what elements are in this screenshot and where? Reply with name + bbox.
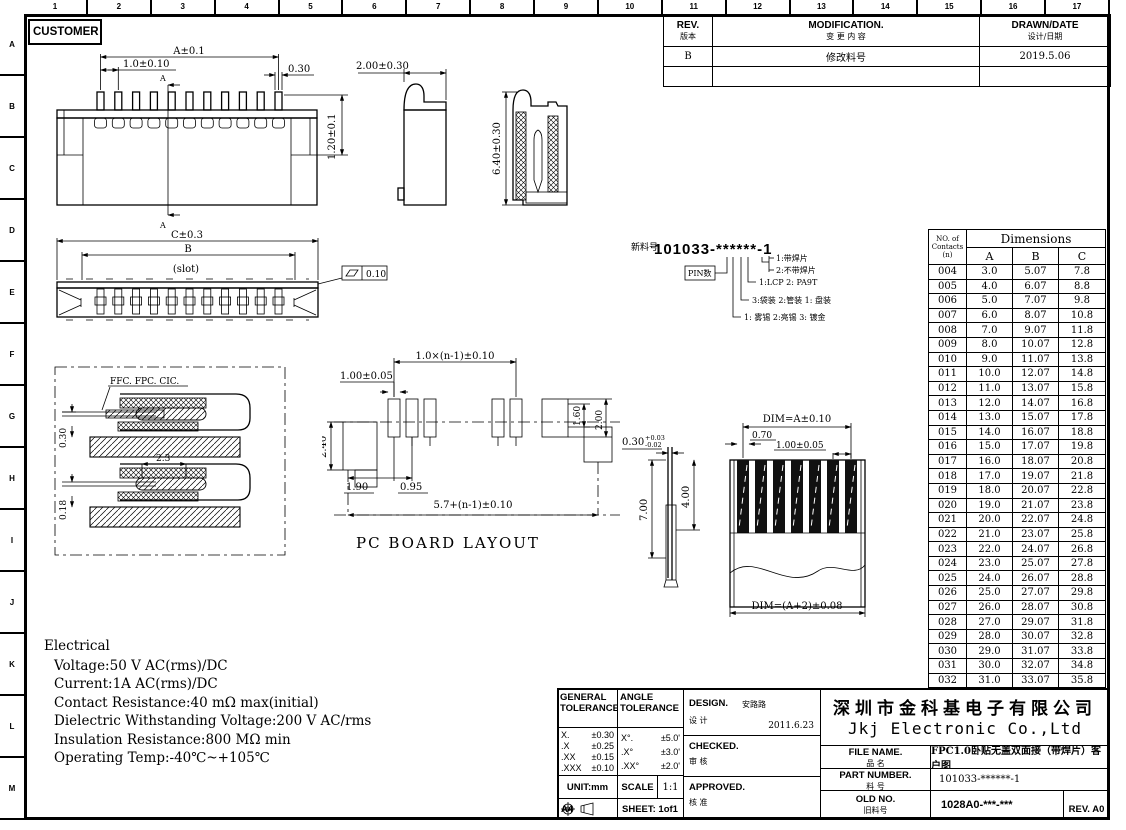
revision-table: REV.版本 MODIFICATION.变 更 内 容 DRAWN/DATE设计… [663, 14, 1111, 87]
dim-table-row: 01110.012.0714.8 [929, 367, 1106, 382]
dim-table-row: 0054.06.078.8 [929, 279, 1106, 294]
revision-row: B 修改料号 2019.5.06 [664, 47, 1111, 67]
ruler-top-cell: 16 [982, 0, 1046, 14]
svg-text:0.10: 0.10 [366, 270, 386, 280]
mod-col-header: MODIFICATION.变 更 内 容 [713, 15, 980, 47]
ruler-left-cell: E [0, 262, 24, 324]
ruler-left-cell: H [0, 448, 24, 510]
detail-sections: FFC. FPC. CIC. 0.30 2.3 [46, 360, 296, 565]
ruler-top-cell: 6 [343, 0, 407, 14]
ruler-top-cell: 5 [280, 0, 344, 14]
legend-note: 1: 雾锡 2:亮锡 3: 镀金 [744, 312, 826, 322]
dim-table-row: 03231.033.0735.8 [929, 673, 1106, 688]
dim-pcb-h1: 1.60 [573, 406, 583, 426]
title-block: GENERALTOLERANCE ANGLETOLERANCE X.±0.30 … [557, 688, 1110, 820]
dimensions-table: NO. of Contacts (n) Dimensions A B C 004… [928, 229, 1106, 688]
dim-pcb-h3: 2.40 [322, 436, 329, 458]
section-line-a: A A [159, 74, 180, 230]
ruler-top-cell: 12 [727, 0, 791, 14]
dim-ffc-l2: 4.00 [681, 486, 692, 508]
ruler-top-cell: 9 [535, 0, 599, 14]
dim-detail-w: 2.3 [156, 454, 171, 464]
dim-ffc-pitch: 1.00±0.05 [776, 441, 824, 451]
ffc-views: 0.30 +0.03 -0.02 7.00 4.00 [618, 393, 913, 633]
dim-pcb-o1: 1.90 [346, 482, 368, 493]
svg-text:A: A [159, 74, 166, 83]
dim-ffc-l1: 7.00 [639, 499, 650, 521]
pin-count-label: PIN数 [688, 268, 712, 278]
ruler-left-cell: K [0, 634, 24, 696]
dim-detail-t1: 0.30 [59, 428, 69, 448]
electrical-line: Contact Resistance:40 mΩ max(initial) [54, 694, 371, 712]
ruler-left-cell: I [0, 510, 24, 572]
ruler-left-cell: B [0, 76, 24, 138]
dim-ffc-wa: DIM=A±0.10 [763, 414, 831, 425]
ruler-top-cell: 2 [88, 0, 152, 14]
ruler-top-cell: 1 [24, 0, 88, 14]
bottom-view: C±0.3 B (slot) [36, 230, 436, 335]
section-view [513, 90, 567, 205]
dim-pcb-o2: 0.95 [400, 482, 422, 493]
dim-table-row: 0087.09.0711.8 [929, 323, 1106, 338]
customer-label: CUSTOMER [33, 26, 99, 38]
dim-pcb-pad: 1.00±0.05 [340, 371, 393, 382]
dim-pcb-h2: 2.00 [595, 410, 605, 430]
electrical-line: Insulation Resistance:800 MΩ min [54, 731, 371, 749]
ruler-top-cell: 8 [471, 0, 535, 14]
electrical-line: Voltage:50 V AC(rms)/DC [54, 657, 371, 675]
electrical-title: Electrical [44, 638, 371, 654]
drawn-col-header: DRAWN/DATE设计/日期 [980, 15, 1111, 47]
dim-table-row: 0065.07.079.8 [929, 294, 1106, 309]
dim-pcb-total: 5.7+(n-1)±0.10 [434, 500, 513, 511]
dim-ffc-wb: DIM=(A+2)±0.08 [752, 601, 843, 612]
ruler-left-cell: J [0, 572, 24, 634]
dim-table-row: 02120.022.0724.8 [929, 513, 1106, 528]
ruler-top: 1234567891011121314151617 [24, 0, 1110, 14]
rev-col-header: REV.版本 [664, 15, 713, 47]
title-block-border [557, 688, 1110, 820]
legend-note: 3:袋装 2:管装 1: 盘装 [752, 295, 831, 305]
dim-ffc-gap: 0.70 [752, 431, 772, 441]
slot-label: (slot) [173, 264, 199, 275]
ruler-top-cell: 15 [918, 0, 982, 14]
dim-b: B [184, 244, 191, 255]
ruler-left-cell: D [0, 200, 24, 262]
bottom-view-contacts [95, 289, 284, 314]
dim-table-row: 01918.020.0722.8 [929, 483, 1106, 498]
ruler-top-cell: 14 [854, 0, 918, 14]
cable-types-label: FFC. FPC. CIC. [110, 377, 179, 387]
dim-table-row: 01413.015.0717.8 [929, 410, 1106, 425]
electrical-line: Dielectric Withstanding Voltage:200 V AC… [54, 712, 371, 730]
side-view [398, 84, 446, 205]
electrical-notes: Electrical Voltage:50 V AC(rms)/DC Curre… [44, 638, 371, 767]
dim-table-row: 02221.023.0725.8 [929, 527, 1106, 542]
dim-table-row: 03130.032.0734.8 [929, 659, 1106, 674]
part-number-legend: 新料号 101033-******-1 PIN数 1:带焊片 2:不带焊片 1:… [628, 232, 928, 337]
ruler-left-cell: M [0, 758, 24, 820]
dim-table-row: 02625.027.0729.8 [929, 586, 1106, 601]
dim-table-row: 0076.08.0710.8 [929, 308, 1106, 323]
part-code-number: 101033-******-1 [654, 241, 772, 258]
dim-height: 1.20±0.1 [327, 113, 338, 160]
ruler-top-cell: 3 [152, 0, 216, 14]
dim-side-width: 2.00±0.30 [356, 61, 409, 72]
dim-table-row: 02524.026.0728.8 [929, 571, 1106, 586]
pcb-layout: 1.0×(n-1)±0.10 1.00±0.05 2.40 1.60 2.00 … [322, 348, 627, 560]
ruler-top-cell: 10 [599, 0, 663, 14]
dim-table-row: 02019.021.0723.8 [929, 498, 1106, 513]
ruler-top-cell: 7 [407, 0, 471, 14]
revision-row [664, 67, 1111, 87]
front-view [57, 110, 317, 205]
legend-note: 1:带焊片 [776, 253, 808, 263]
ruler-top-cell: 13 [791, 0, 855, 14]
dim-table-row: 01312.014.0716.8 [929, 396, 1106, 411]
dim-table-row: 0098.010.0712.8 [929, 337, 1106, 352]
dim-table-row: 01211.013.0715.8 [929, 381, 1106, 396]
flatness-icon [346, 270, 358, 276]
dim-pin-width: 0.30 [288, 64, 310, 75]
dim-table-row: 03029.031.0733.8 [929, 644, 1106, 659]
col-a-header: A [967, 248, 1013, 265]
dim-section-height: 6.40±0.30 [492, 122, 503, 175]
dim-pcb-pitch: 1.0×(n-1)±0.10 [416, 351, 495, 362]
dimensions-header: Dimensions [967, 230, 1106, 248]
dim-pitch: 1.0±0.10 [123, 59, 170, 70]
dim-table-row: 01817.019.0721.8 [929, 469, 1106, 484]
dim-table-row: 02322.024.0726.8 [929, 542, 1106, 557]
dim-table-row: 01716.018.0720.8 [929, 454, 1106, 469]
drawing-sheet: 1234567891011121314151617 ABCDEFGHIJKLM … [0, 0, 1126, 830]
pcb-pads [343, 399, 612, 487]
ruler-left-cell: C [0, 138, 24, 200]
detail-upper: 0.30 [59, 394, 250, 457]
pcb-caption: PC BOARD LAYOUT [356, 534, 540, 552]
ruler-top-cell: 17 [1046, 0, 1110, 14]
svg-text:A: A [159, 221, 166, 230]
dim-table-row: 01615.017.0719.8 [929, 440, 1106, 455]
front-side-section-views: A±0.1 1.0±0.10 0.30 1.20±0.1 A A 2. [36, 40, 610, 235]
dim-table-row: 01514.016.0718.8 [929, 425, 1106, 440]
svg-text:-0.02: -0.02 [645, 441, 662, 449]
legend-note: 2:不带焊片 [776, 265, 816, 275]
electrical-line: Current:1A AC(rms)/DC [54, 675, 371, 693]
col-c-header: C [1059, 248, 1106, 265]
dim-table-row: 0109.011.0713.8 [929, 352, 1106, 367]
dim-table-row: 02423.025.0727.8 [929, 556, 1106, 571]
col-b-header: B [1013, 248, 1059, 265]
legend-note: 1:LCP 2: PA9T [759, 278, 818, 287]
dim-detail-t2: 0.18 [59, 500, 69, 520]
ruler-left-cell: A [0, 14, 24, 76]
contacts-header: NO. of Contacts (n) [929, 230, 967, 265]
dim-table-row: 02827.029.0731.8 [929, 615, 1106, 630]
dim-table-row: 02726.028.0730.8 [929, 600, 1106, 615]
ruler-left-cell: G [0, 386, 24, 448]
flatness-callout: 0.10 [318, 266, 387, 284]
dim-table-body: 0043.05.077.80054.06.078.80065.07.079.80… [929, 265, 1106, 688]
ruler-top-cell: 11 [663, 0, 727, 14]
ruler-left-cell: L [0, 696, 24, 758]
ruler-left: ABCDEFGHIJKLM [0, 14, 24, 820]
detail-lower: 2.3 0.18 [59, 454, 250, 527]
ruler-left-cell: F [0, 324, 24, 386]
ffc-front-view [730, 460, 865, 607]
ruler-top-cell: 4 [216, 0, 280, 14]
dim-ffc-t: 0.30 [622, 437, 644, 448]
dim-c: C±0.3 [171, 230, 203, 241]
dim-a: A±0.1 [172, 46, 205, 57]
dim-table-row: 02928.030.0732.8 [929, 629, 1106, 644]
ffc-side-view [664, 447, 678, 587]
dim-table-row: 0043.05.077.8 [929, 265, 1106, 280]
electrical-line: Operating Temp:-40℃~+105℃ [54, 749, 371, 767]
